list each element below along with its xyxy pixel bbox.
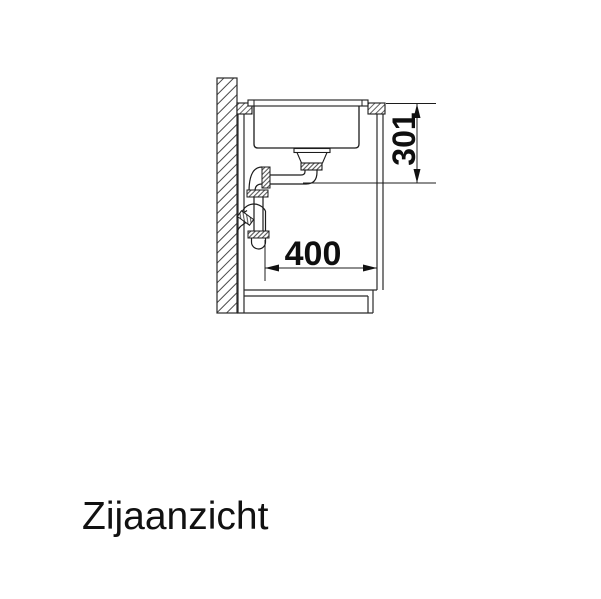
drain-strainer: [294, 149, 330, 171]
wall-section: [217, 78, 237, 313]
cabinet-body: [237, 114, 383, 313]
diagram-canvas: 301 400 Zijaanzicht: [0, 0, 601, 599]
sink-rim: [248, 100, 368, 106]
pipe-nut-horizontal: [262, 167, 270, 188]
dimension-width-label: 400: [285, 235, 342, 273]
strainer-flange: [294, 149, 330, 153]
pipe-nut-upper: [247, 190, 268, 197]
arrow-down-icon: [414, 169, 421, 183]
view-title: Zijaanzicht: [82, 497, 268, 536]
countertop-right-section: [368, 103, 385, 114]
trap-cup-bottom: [252, 238, 266, 249]
dimension-height-label: 301: [386, 112, 422, 165]
pipe-nut-lower: [248, 231, 269, 238]
arrow-right-icon: [363, 265, 377, 272]
sink-bowl: [254, 106, 359, 148]
arrow-left-icon: [265, 265, 279, 272]
strainer-body: [297, 153, 327, 164]
dimension-vertical: 301: [303, 104, 436, 184]
sink-basin: [248, 100, 368, 148]
drain-pipe-bottom: [264, 170, 317, 184]
strainer-nut: [301, 163, 322, 170]
dimension-horizontal: 400: [265, 235, 377, 281]
